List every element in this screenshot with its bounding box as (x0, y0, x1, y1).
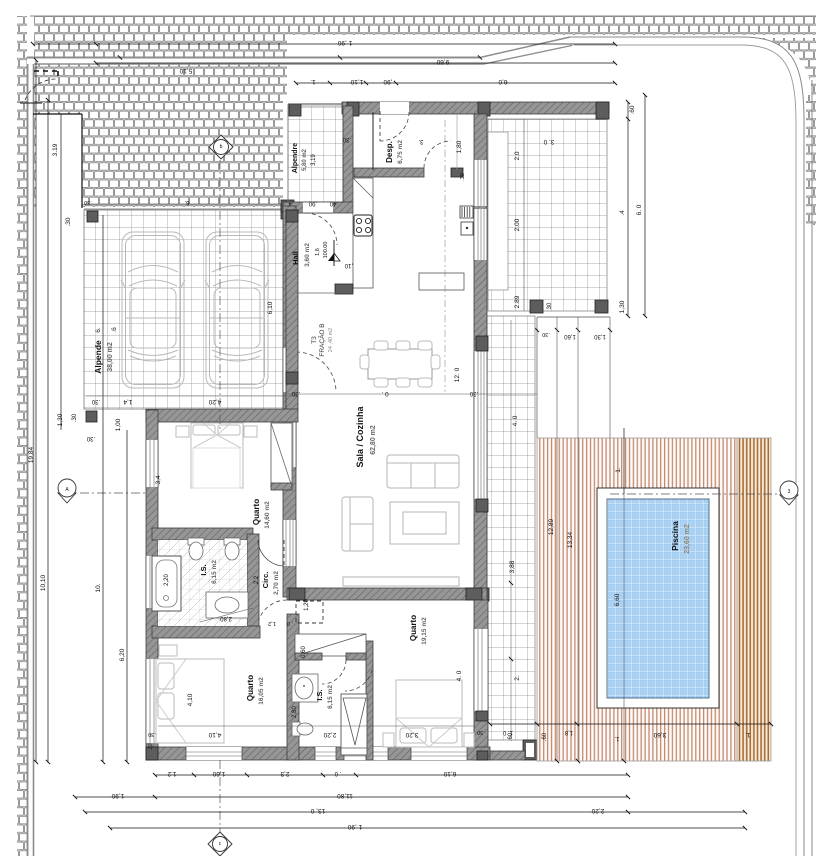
svg-text:6,75 m2: 6,75 m2 (397, 140, 404, 164)
svg-text:Piscina: Piscina (670, 521, 680, 551)
svg-text:6,15 m2: 6,15 m2 (327, 685, 334, 709)
svg-text:1,10: 1,10 (350, 78, 363, 85)
svg-text:3. 0: 3. 0 (543, 138, 554, 145)
svg-text:Alpendre: Alpendre (292, 143, 299, 173)
svg-text:.30: .30 (148, 743, 154, 750)
svg-text:Circ.: Circ. (261, 572, 270, 589)
svg-text:6,15 m2: 6,15 m2 (211, 560, 218, 584)
svg-text:,90: ,90 (383, 78, 392, 85)
svg-text:. 0: . 0 (287, 620, 293, 626)
svg-text:23,60 m2: 23,60 m2 (684, 524, 691, 554)
svg-text:.4: .4 (288, 200, 294, 206)
svg-text:11,80: 11,80 (337, 792, 353, 799)
svg-text:2.00: 2.00 (514, 218, 521, 231)
svg-text:3,60: 3,60 (653, 731, 666, 738)
svg-text:T3: T3 (311, 336, 318, 344)
svg-text:0,60: 0,60 (301, 646, 307, 658)
svg-text:.60: .60 (508, 732, 514, 741)
svg-text:,90: ,90 (308, 200, 317, 206)
svg-text:3,60 m2: 3,60 m2 (304, 243, 311, 267)
svg-text:,40: ,40 (329, 200, 338, 206)
svg-text:1,60: 1,60 (212, 770, 225, 777)
svg-text:.30: .30 (460, 173, 466, 181)
svg-text:1,20: 1,20 (304, 599, 310, 611)
svg-text:3: 3 (788, 489, 791, 495)
svg-text:Alpende: Alpende (93, 340, 103, 374)
svg-text:5,10: 5,10 (179, 67, 192, 74)
svg-text:.30: .30 (477, 729, 485, 735)
svg-text:Desp.: Desp. (385, 141, 394, 163)
svg-text:.30: .30 (65, 217, 72, 226)
svg-text:38,00 m2: 38,00 m2 (107, 342, 114, 372)
svg-text:13,34: 13,34 (567, 531, 574, 548)
svg-text:3.19: 3.19 (52, 143, 59, 156)
svg-text:.4: .4 (619, 210, 626, 216)
svg-text:.30: .30 (148, 731, 156, 737)
svg-text:1,60: 1,60 (564, 333, 576, 339)
svg-text:2,70 m2: 2,70 m2 (273, 571, 280, 595)
svg-text:1 ,90: 1 ,90 (337, 39, 352, 46)
svg-text:2,20: 2,20 (591, 807, 604, 814)
svg-text:1,30: 1,30 (619, 300, 626, 313)
svg-text:4,10: 4,10 (187, 693, 194, 706)
svg-text:2,20: 2,20 (164, 574, 170, 586)
svg-text:10,10: 10,10 (40, 574, 47, 591)
svg-text:1.: 1. (614, 735, 619, 741)
svg-text:.30: .30 (469, 390, 478, 396)
svg-text:Hall: Hall (291, 251, 300, 265)
svg-text:Quarto: Quarto (246, 675, 255, 701)
svg-text:2,3: 2,3 (280, 770, 289, 777)
svg-text:3,88: 3,88 (509, 560, 516, 573)
svg-text:6.: 6. (184, 199, 189, 205)
svg-text:1,30: 1,30 (57, 413, 64, 426)
svg-text:1 ,90: 1 ,90 (347, 823, 362, 830)
svg-text:.30: .30 (91, 398, 100, 404)
svg-text:4,10: 4,10 (208, 731, 221, 738)
svg-text:1,: 1, (745, 731, 750, 737)
svg-text:2.: 2. (514, 675, 521, 681)
svg-text:13, 0: 13, 0 (310, 807, 325, 814)
svg-text:1,90: 1,90 (111, 792, 124, 799)
svg-text:6.: 6. (95, 327, 102, 333)
svg-text:1,6: 1,6 (315, 248, 321, 256)
svg-text:4,20: 4,20 (208, 398, 221, 405)
svg-text:4. 0: 4. 0 (512, 415, 519, 426)
svg-text:1,8: 1,8 (564, 729, 573, 735)
svg-text:.30: .30 (542, 331, 550, 337)
svg-text:3,4: 3,4 (155, 475, 162, 484)
svg-text:.30: .30 (291, 390, 300, 396)
svg-text:2,20: 2,20 (323, 731, 336, 738)
svg-text:FRAÇÃO B: FRAÇÃO B (317, 323, 326, 356)
svg-text:1,2: 1,2 (268, 620, 276, 626)
svg-text:6,0: 6,0 (498, 78, 507, 85)
svg-text:24 ,40 m2: 24 ,40 m2 (328, 328, 334, 352)
svg-text:.60: .60 (542, 732, 548, 741)
svg-text:.30: .30 (342, 136, 351, 142)
svg-text:5,80 m2: 5,80 m2 (302, 148, 308, 171)
svg-text:1,00: 1,00 (115, 418, 122, 431)
svg-text:.60: .60 (629, 105, 636, 114)
svg-text:6,10: 6,10 (267, 301, 274, 314)
svg-text:b: b (220, 144, 223, 150)
svg-text:9,60: 9,60 (436, 58, 449, 65)
svg-text:12. 0: 12. 0 (454, 367, 461, 382)
svg-text:I.S.: I.S. (315, 689, 324, 700)
svg-text:100.00: 100.00 (323, 242, 329, 259)
svg-text:2,80: 2,80 (292, 706, 298, 718)
svg-text:4. 0: 4. 0 (456, 670, 463, 681)
svg-text:2.0: 2.0 (514, 151, 521, 160)
svg-text:14,60 m2: 14,60 m2 (264, 501, 271, 529)
svg-text:6,10: 6,10 (443, 770, 456, 777)
svg-text:30: 30 (547, 302, 553, 309)
svg-text:.30: .30 (86, 435, 95, 441)
svg-text:,10: ,10 (344, 262, 353, 268)
svg-text:6,60: 6,60 (614, 593, 621, 606)
svg-text:1,80: 1,80 (456, 140, 463, 153)
svg-text:Sala / Cozinha: Sala / Cozinha (355, 405, 365, 467)
svg-text:I.S.: I.S. (199, 564, 208, 575)
svg-text:1,4: 1,4 (123, 398, 132, 405)
svg-text:1.: 1. (615, 467, 622, 473)
svg-text:2,80: 2,80 (220, 615, 232, 621)
svg-text:0 .: 0 . (381, 390, 388, 397)
svg-text:Quarto: Quarto (409, 615, 418, 641)
svg-text:. 0: . 0 (334, 770, 341, 776)
svg-text:12,89: 12,89 (548, 518, 555, 535)
svg-text:10.: 10. (95, 583, 102, 592)
svg-text:6. 0: 6. 0 (636, 204, 643, 215)
svg-text:2.89: 2.89 (514, 295, 521, 308)
svg-text:2.2: 2.2 (254, 575, 260, 584)
svg-text:3.: 3. (418, 138, 423, 144)
svg-text:1.: 1. (310, 78, 316, 85)
svg-text:62,80 m2: 62,80 m2 (370, 425, 377, 455)
svg-text:1.2: 1.2 (167, 770, 176, 777)
svg-text:.30: .30 (72, 413, 78, 422)
svg-text:1,30: 1,30 (594, 333, 606, 339)
svg-text:Quarto: Quarto (252, 499, 261, 525)
svg-text:.6: .6 (111, 327, 118, 333)
svg-text:19,15 m2: 19,15 m2 (421, 617, 428, 645)
svg-text:3,19: 3,19 (311, 154, 317, 166)
svg-text:6,20: 6,20 (119, 648, 126, 661)
svg-text:3,20: 3,20 (405, 731, 418, 738)
svg-text:16,05 m2: 16,05 m2 (258, 677, 265, 705)
svg-text:19,84: 19,84 (28, 446, 35, 463)
